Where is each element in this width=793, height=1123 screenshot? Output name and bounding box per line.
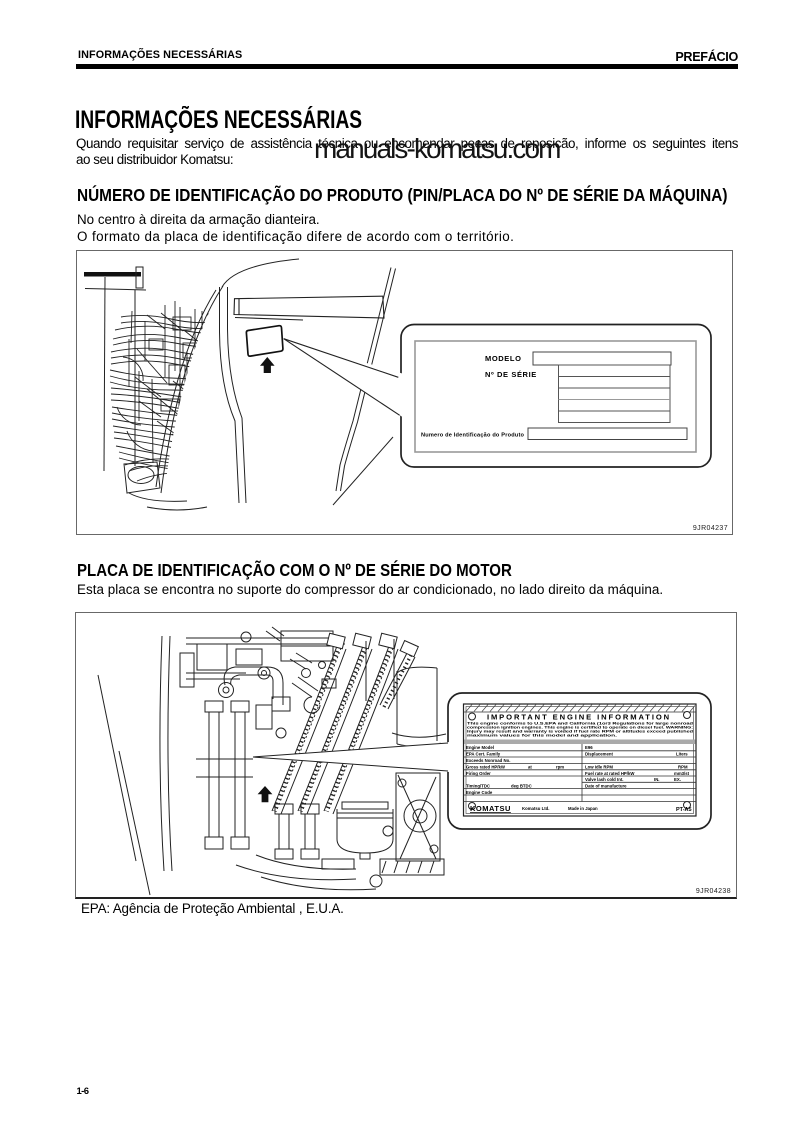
svg-text:Gross rated HP/kW: Gross rated HP/kW — [466, 765, 506, 770]
svg-text:Fuel rate at rated HP/kW: Fuel rate at rated HP/kW — [585, 771, 635, 776]
svg-text:RPM: RPM — [678, 765, 688, 770]
svg-text:deg BTDC: deg BTDC — [511, 784, 532, 789]
svg-text:9JR04237: 9JR04237 — [693, 525, 728, 532]
svg-text:Liters: Liters — [676, 752, 688, 757]
svg-text:Valve lash cold Int.: Valve lash cold Int. — [585, 777, 623, 782]
svg-text:EX.: EX. — [674, 777, 681, 782]
svg-text:Numero de Identificação do Pro: Numero de Identificação do Produto — [421, 432, 525, 438]
svg-text:rpm: rpm — [556, 765, 564, 770]
svg-text:EPA Cert. Family: EPA Cert. Family — [466, 752, 501, 757]
svg-text:Made in Japan: Made in Japan — [568, 806, 598, 811]
svg-text:MODELO: MODELO — [485, 354, 522, 363]
svg-text:Komatsu Ltd.: Komatsu Ltd. — [522, 806, 549, 811]
svg-text:Displacement: Displacement — [585, 752, 614, 757]
svg-text:Firing Order: Firing Order — [466, 771, 491, 776]
svg-text:Timing/TDC: Timing/TDC — [466, 784, 490, 789]
svg-text:Engine Code: Engine Code — [466, 790, 493, 795]
svg-text:maximum values for this model: maximum values for this model and applic… — [467, 732, 617, 737]
svg-text:E96: E96 — [585, 745, 593, 750]
svg-text:Nº DE SÉRIE: Nº DE SÉRIE — [485, 370, 537, 379]
svg-text:Engine Model: Engine Model — [466, 745, 494, 750]
svg-text:Exceeds Nonroad No.: Exceeds Nonroad No. — [466, 758, 510, 763]
svg-text:PT-A5: PT-A5 — [676, 807, 692, 813]
svg-text:9JR04238: 9JR04238 — [696, 888, 731, 895]
svg-text:at: at — [528, 765, 532, 770]
svg-text:mm3/st: mm3/st — [674, 771, 690, 776]
svg-text:Date of manufacture: Date of manufacture — [585, 784, 627, 789]
svg-text:IN.: IN. — [654, 777, 660, 782]
svg-text:Low Idle RPM: Low Idle RPM — [585, 765, 613, 770]
svg-text:KOMATSU: KOMATSU — [470, 804, 511, 813]
